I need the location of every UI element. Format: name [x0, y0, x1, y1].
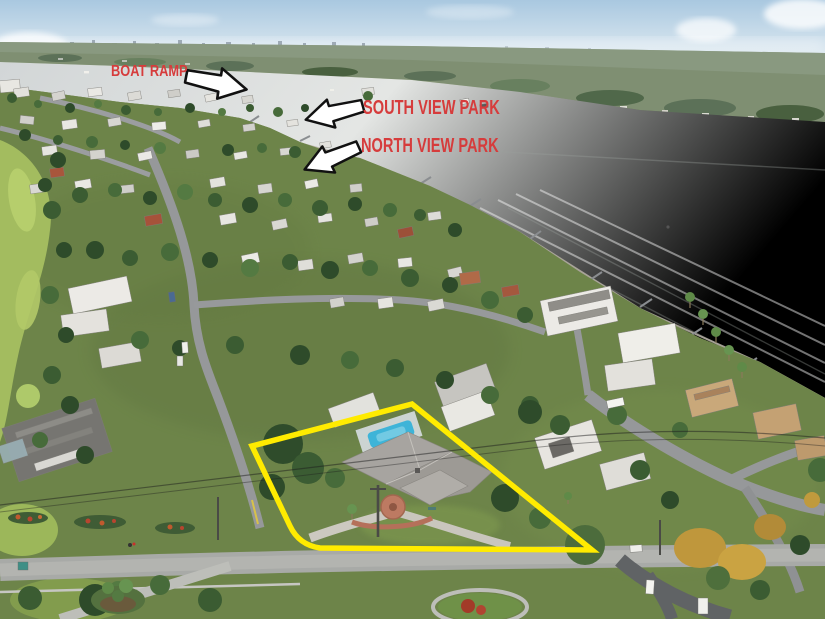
aerial-listing-photo: BOAT RAMP SOUTH VIEW PARK NORTH VIEW PAR… — [0, 0, 825, 619]
boat-ramp-label: BOAT RAMP — [111, 64, 188, 80]
aerial-photo-scene — [0, 0, 825, 619]
north-view-park-label: NORTH VIEW PARK — [361, 136, 499, 156]
south-view-park-label: SOUTH VIEW PARK — [363, 98, 500, 118]
